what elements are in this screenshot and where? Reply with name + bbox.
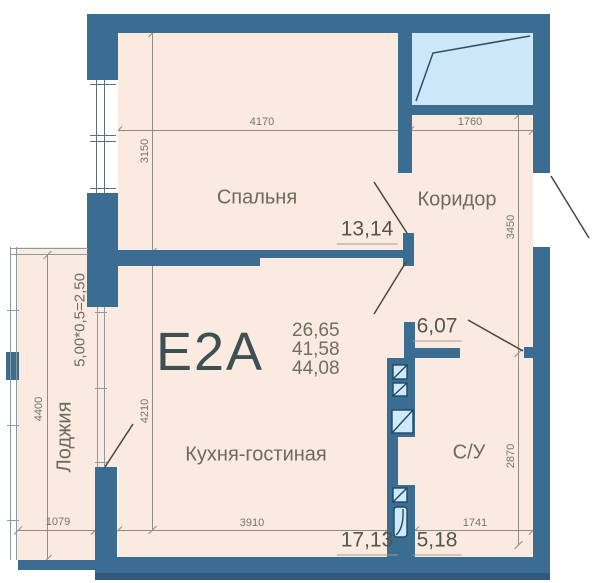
dim-corridor-width: 1760	[458, 116, 482, 128]
symbols-layer	[0, 0, 600, 583]
loggia-label: Лоджия	[54, 402, 77, 473]
kitchen-loggia-glazing-icon	[95, 307, 107, 467]
vent-shaft-symbols	[392, 365, 413, 537]
bedroom-opening-lower-leaf-icon	[374, 262, 406, 314]
unit-label: Е2А	[156, 321, 264, 383]
kitchen-living-label: Кухня-гостиная	[185, 444, 327, 467]
entrance-door-leaf-icon	[551, 176, 589, 238]
dim-bathroom-depth: 2870	[505, 444, 517, 468]
area-living: 26,65	[292, 322, 340, 340]
dim-loggia-depth: 4400	[33, 397, 45, 421]
balcony-door-leaf-icon	[105, 424, 133, 467]
dim-kitchen-width: 3910	[240, 517, 264, 529]
bedroom-area: 13,14	[337, 218, 398, 245]
loggia-area-formula: 5,00*0,5=2,50	[72, 273, 89, 367]
dim-corridor-depth: 3450	[505, 215, 517, 239]
dim-bathroom-width: 1741	[463, 517, 487, 529]
bathroom-area: 5,18	[413, 529, 462, 556]
dim-kitchen-depth: 4210	[139, 399, 151, 423]
bathroom-label: С/У	[453, 442, 486, 465]
bedroom-window-frame-icon	[90, 80, 116, 193]
area-total: 44,08	[292, 360, 340, 378]
dim-bedroom-depth: 3150	[139, 139, 151, 163]
dim-loggia-width: 1079	[46, 516, 70, 528]
bedroom-label: Спальня	[217, 187, 297, 210]
area-summary: 26,65 41,58 44,08	[292, 322, 340, 379]
dim-bedroom-width: 4170	[250, 116, 274, 128]
bathroom-door-leaf-icon	[468, 320, 523, 351]
hallway-area: 6,07	[413, 315, 462, 342]
kitchen-living-area: 17,13	[337, 529, 398, 556]
bay-window-opening-icon	[416, 36, 530, 101]
area-apartment: 41,58	[292, 341, 340, 359]
apartment-floor-plan: Е2А 26,65 41,58 44,08 Спальня Коридор Ку…	[0, 0, 600, 583]
corridor-label: Коридор	[418, 189, 497, 212]
